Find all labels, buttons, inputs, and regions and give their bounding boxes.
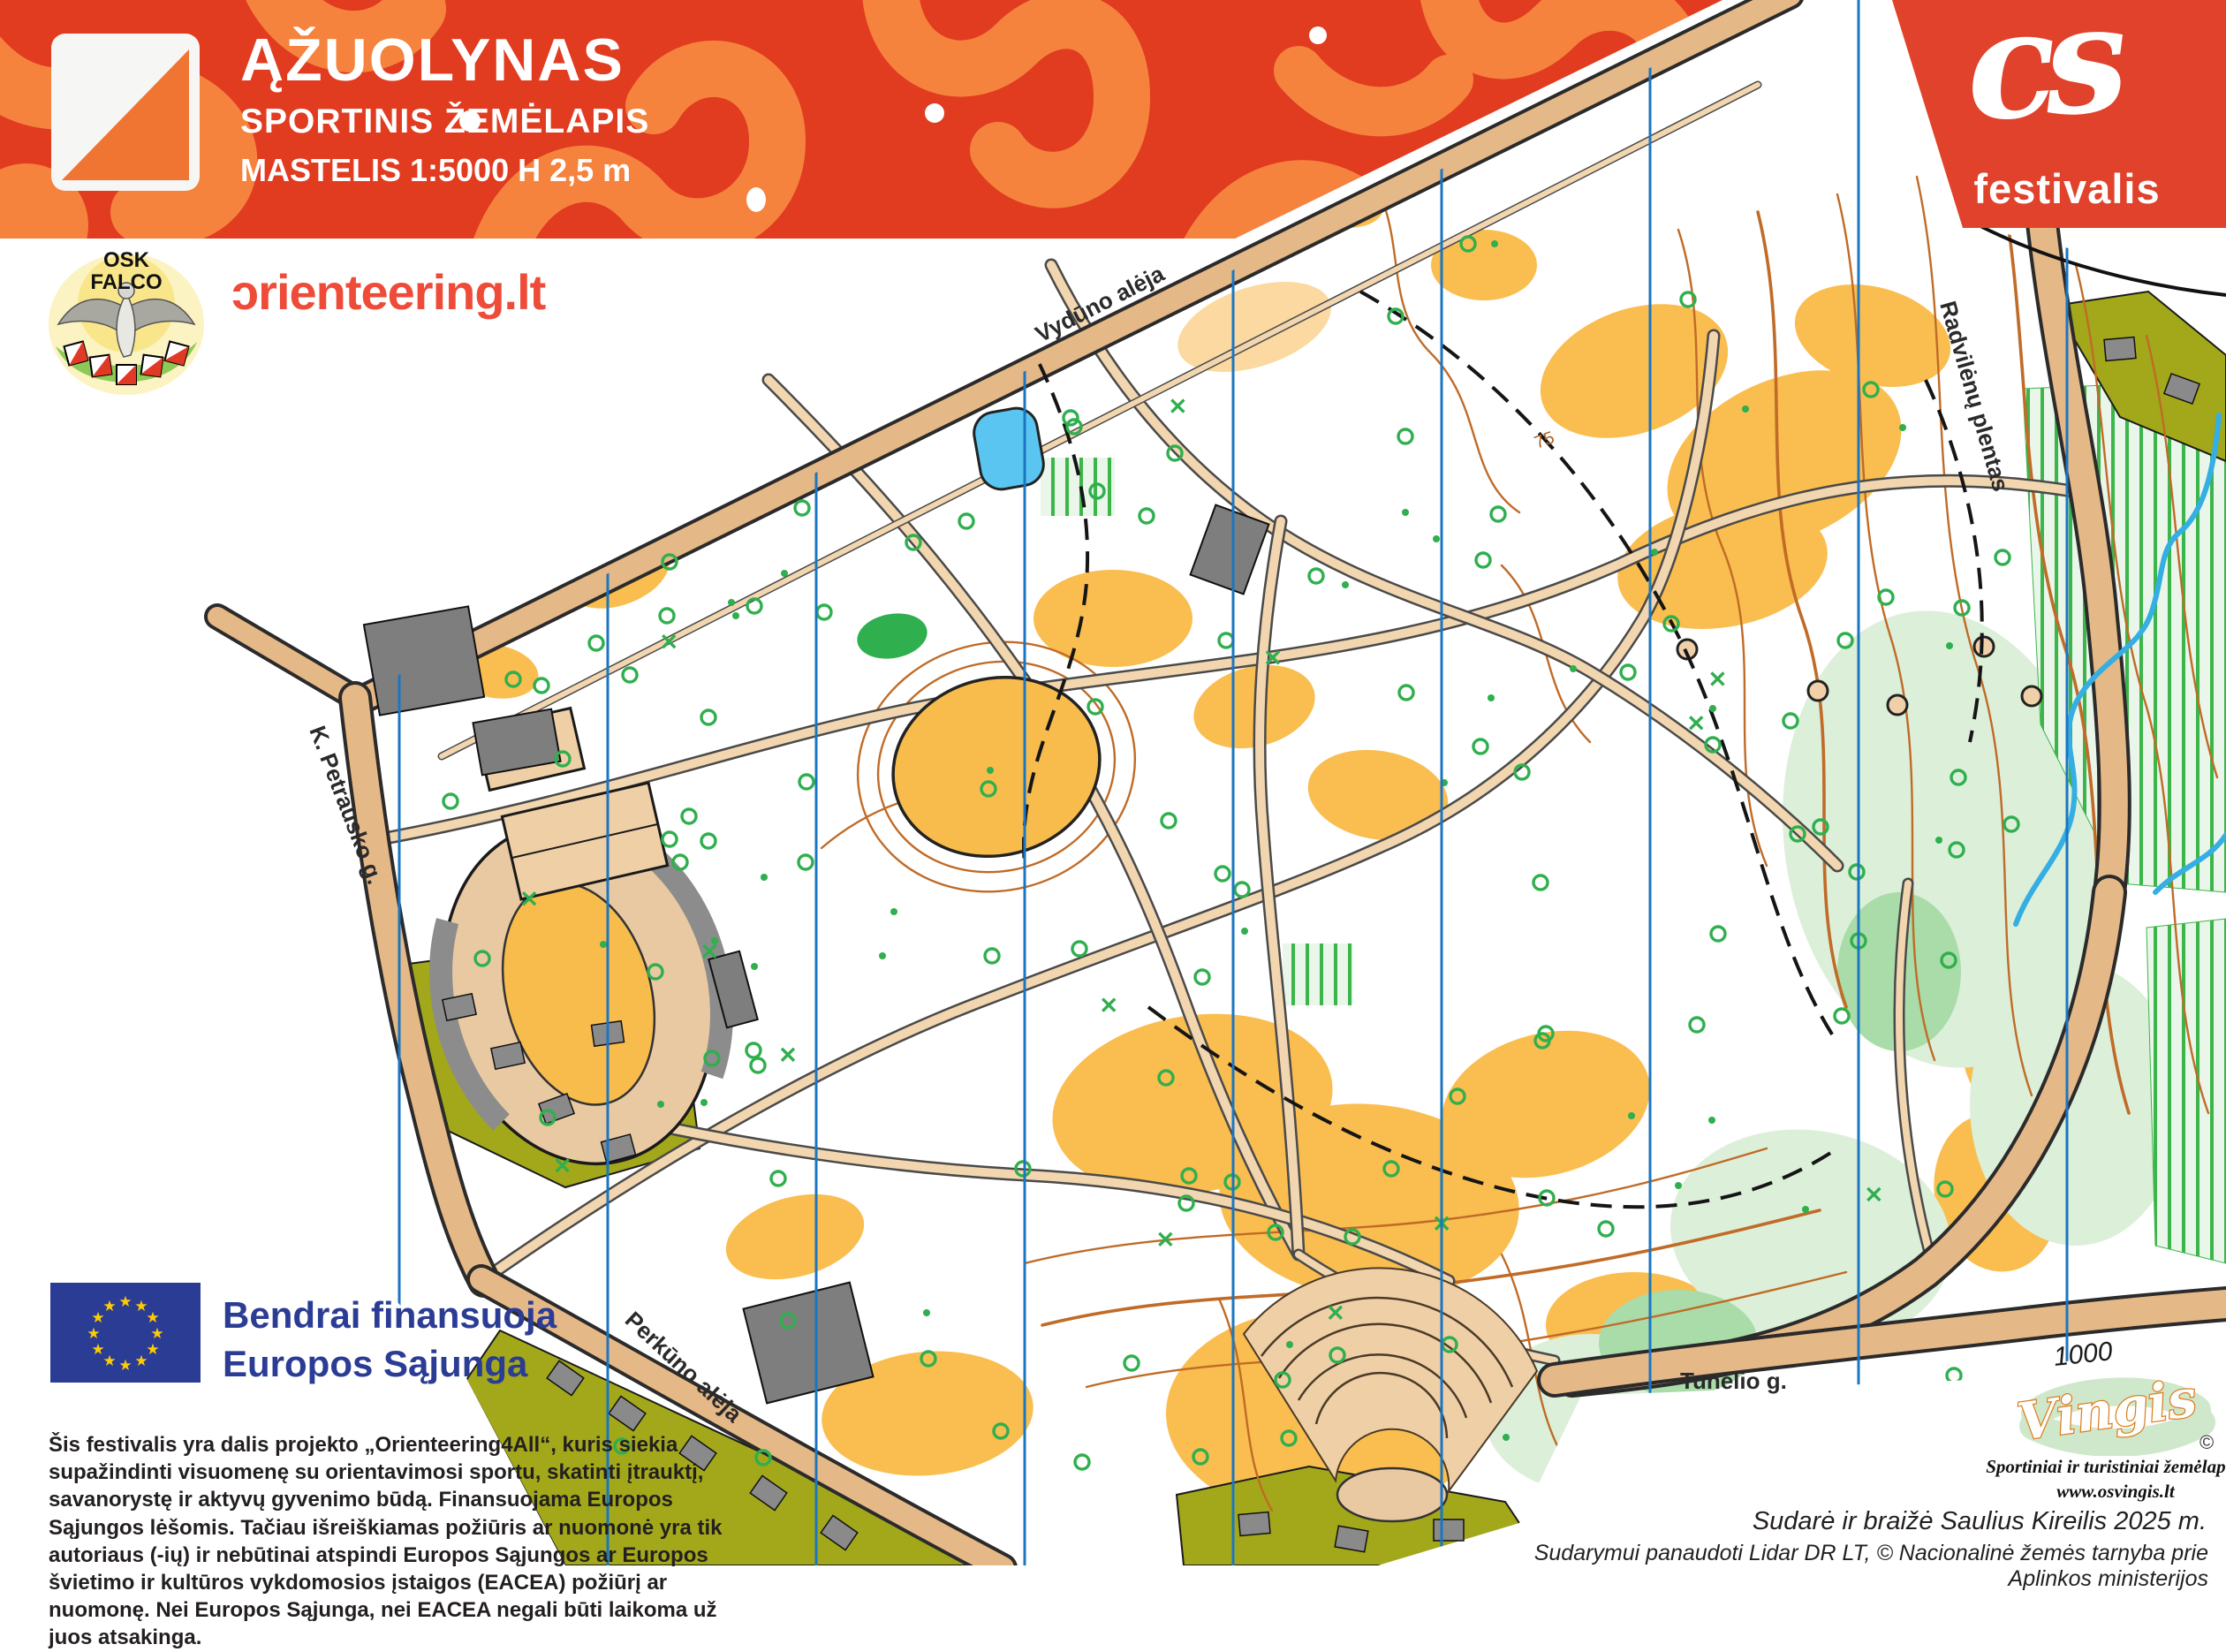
eu-funding-line2: Europos Sąjunga xyxy=(223,1340,556,1389)
svg-text:★: ★ xyxy=(146,1341,159,1358)
svg-text:★: ★ xyxy=(87,1325,100,1342)
eu-funding-text: Bendrai finansuoja Europos Sąjunga xyxy=(223,1292,556,1388)
eu-flag-icon: ★★★ ★★★ ★★★ ★★★ xyxy=(50,1283,201,1383)
vingis-logo: Vingis © xyxy=(2016,1368,2219,1456)
svg-text:★: ★ xyxy=(150,1325,163,1342)
credit-source: Sudarymui panaudoti Lidar DR LT, © Nacio… xyxy=(1502,1541,2208,1592)
publisher-tagline: Sportiniai ir turistiniai žemėlapiai xyxy=(1974,1456,2226,1478)
grid-label: 1000 xyxy=(2052,1337,2114,1372)
disclaimer-text: Šis festivalis yra dalis projekto „Orien… xyxy=(49,1431,755,1652)
svg-text:★: ★ xyxy=(146,1309,159,1326)
sports-hall xyxy=(364,606,484,715)
map-scale: MASTELIS 1:5000 H 2,5 m xyxy=(240,152,649,189)
map-title: ĄŽUOLYNAS xyxy=(240,30,649,90)
map-subtitle: SPORTINIS ŽEMĖLAPIS xyxy=(240,102,649,141)
pond xyxy=(971,405,1047,492)
publisher-website: www.osvingis.lt xyxy=(1974,1481,2226,1503)
eu-funding-line1: Bendrai finansuoja xyxy=(223,1292,556,1340)
svg-text:★: ★ xyxy=(134,1353,148,1369)
vingis-copyright: © xyxy=(2199,1431,2214,1453)
svg-text:★: ★ xyxy=(102,1353,116,1369)
contour-label: 75 xyxy=(1532,428,1556,452)
club-name-bottom: FALCO xyxy=(90,270,162,294)
svg-text:★: ★ xyxy=(102,1298,116,1315)
orienteering-lt-logo: ɔrienteering.lt xyxy=(231,263,545,321)
street-label-tunelio: Tunelio g. xyxy=(1680,1368,1787,1394)
svg-text:★: ★ xyxy=(118,1293,132,1310)
street-label-radvilenu: Radvilėnų plentas xyxy=(1934,298,2014,494)
club-name-top: OSK xyxy=(103,248,150,272)
svg-text:★: ★ xyxy=(118,1357,132,1374)
orienteering-flag-icon xyxy=(51,34,200,191)
map-poster-page: { "banner": { "title": "ĄŽUOLYNAS", "sub… xyxy=(0,0,2226,1565)
osk-falco-logo: OSK FALCO xyxy=(42,240,210,408)
credit-author: Sudarė ir braižė Saulius Kireilis 2025 m… xyxy=(1634,1507,2207,1536)
svg-text:★: ★ xyxy=(91,1341,104,1358)
